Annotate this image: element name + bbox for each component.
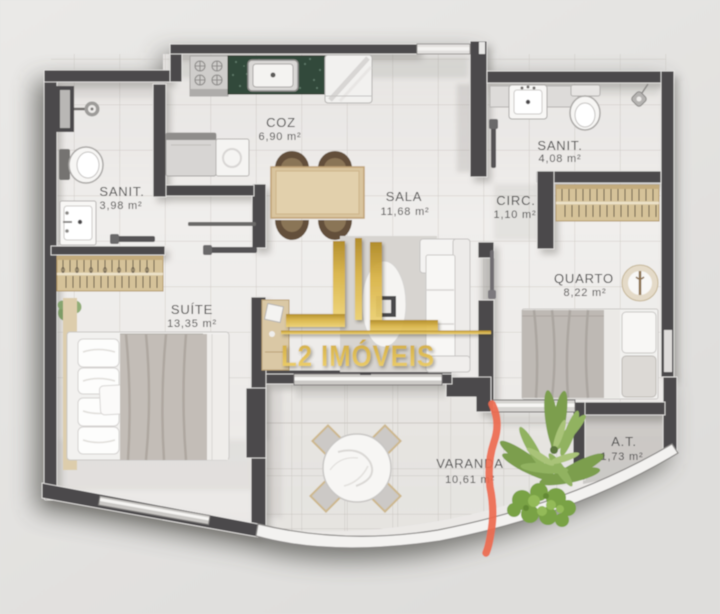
svg-text:13,35 m²: 13,35 m²: [167, 318, 217, 330]
svg-text:1,73 m²: 1,73 m²: [601, 451, 644, 463]
svg-text:4,08 m²: 4,08 m²: [539, 153, 582, 165]
svg-text:QUARTO: QUARTO: [554, 271, 614, 286]
svg-text:3,98 m²: 3,98 m²: [100, 200, 143, 212]
svg-text:11,68 m²: 11,68 m²: [381, 206, 430, 218]
svg-text:8,22 m²: 8,22 m²: [564, 287, 607, 299]
svg-text:6,90 m²: 6,90 m²: [259, 131, 302, 143]
svg-text:SUÍTE: SUÍTE: [171, 302, 213, 317]
svg-text:SANIT.: SANIT.: [537, 138, 582, 153]
svg-text:SALA: SALA: [386, 189, 422, 204]
svg-text:CIRC.: CIRC.: [496, 193, 535, 208]
svg-text:L2 IMÓVEIS: L2 IMÓVEIS: [281, 339, 435, 373]
svg-text:A.T.: A.T.: [611, 434, 637, 449]
svg-text:COZ: COZ: [266, 115, 296, 130]
svg-text:1,10 m²: 1,10 m²: [494, 209, 537, 221]
svg-text:SANIT.: SANIT.: [99, 184, 144, 199]
